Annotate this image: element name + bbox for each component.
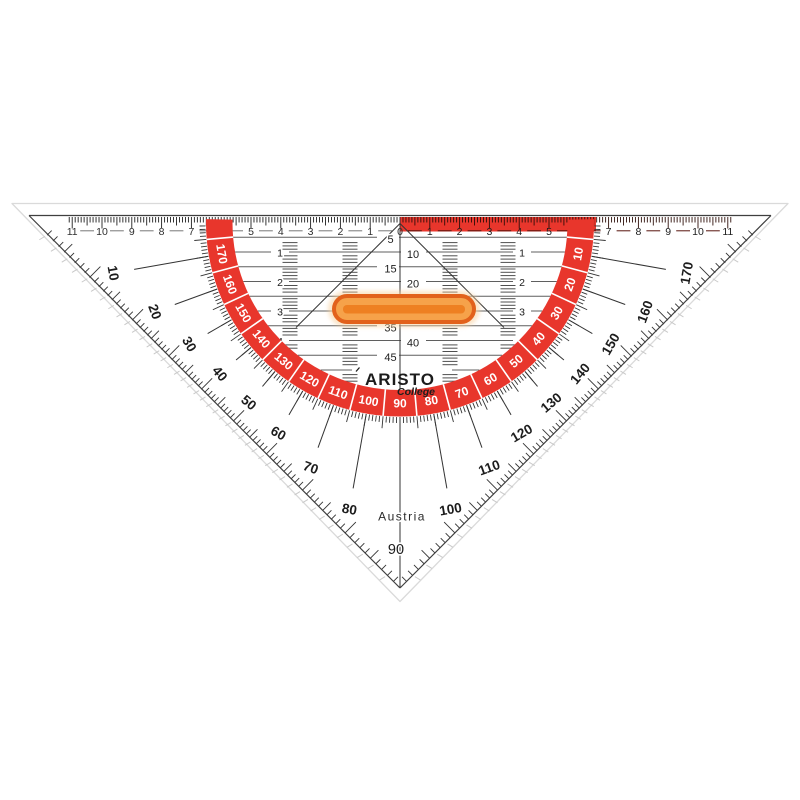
svg-text:90: 90 <box>393 396 407 410</box>
svg-text:1: 1 <box>367 226 373 238</box>
svg-text:10: 10 <box>692 226 704 238</box>
svg-text:3: 3 <box>308 226 314 238</box>
svg-text:4: 4 <box>278 226 284 238</box>
svg-text:8: 8 <box>635 226 641 238</box>
svg-text:20: 20 <box>407 278 419 290</box>
svg-text:8: 8 <box>159 226 165 238</box>
svg-text:45: 45 <box>384 352 396 364</box>
svg-text:5: 5 <box>546 226 552 238</box>
svg-text:5: 5 <box>387 234 393 246</box>
svg-text:College: College <box>397 386 435 398</box>
finger-handle <box>328 291 480 327</box>
svg-text:2: 2 <box>337 226 343 238</box>
svg-text:10: 10 <box>96 226 108 238</box>
geotriangle-graphic: 1110987654321012345678910115101520354045… <box>0 0 800 800</box>
svg-text:5: 5 <box>248 226 254 238</box>
svg-text:2: 2 <box>519 277 525 289</box>
svg-text:90: 90 <box>388 542 404 558</box>
svg-text:11: 11 <box>722 226 733 238</box>
svg-text:Austria: Austria <box>378 510 426 524</box>
svg-text:1: 1 <box>427 226 433 238</box>
svg-text:2: 2 <box>277 277 283 289</box>
svg-text:7: 7 <box>188 226 194 238</box>
svg-text:3: 3 <box>277 307 283 319</box>
svg-text:1: 1 <box>277 248 283 260</box>
svg-text:7: 7 <box>606 226 612 238</box>
svg-text:40: 40 <box>407 337 419 349</box>
svg-text:10: 10 <box>570 246 586 262</box>
svg-text:15: 15 <box>384 264 396 276</box>
svg-text:11: 11 <box>67 226 78 238</box>
svg-text:9: 9 <box>665 226 671 238</box>
svg-text:3: 3 <box>519 307 525 319</box>
svg-text:10: 10 <box>105 264 122 281</box>
svg-text:4: 4 <box>516 226 522 238</box>
svg-text:10: 10 <box>407 249 419 261</box>
svg-text:9: 9 <box>129 226 135 238</box>
svg-text:2: 2 <box>457 226 463 238</box>
svg-text:1: 1 <box>519 248 525 260</box>
svg-text:3: 3 <box>486 226 492 238</box>
geotriangle-photo: 1110987654321012345678910115101520354045… <box>0 0 800 800</box>
svg-text:80: 80 <box>341 501 358 518</box>
